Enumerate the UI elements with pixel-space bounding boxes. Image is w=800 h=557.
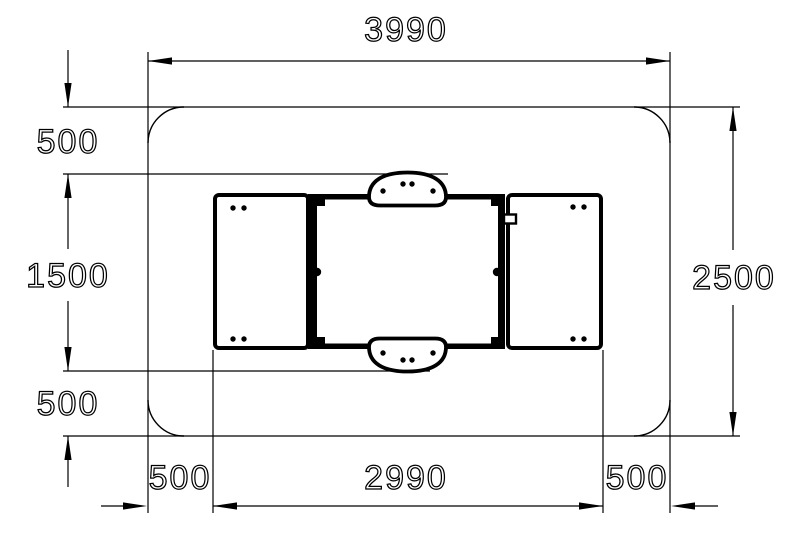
technical-drawing: 3990 2500 500 1500 500 <box>0 0 800 557</box>
dimension-top-clearance: 500 <box>37 50 100 161</box>
extension-lines <box>63 52 740 513</box>
right-panel-latch <box>504 215 516 224</box>
arrowhead-right-icon <box>123 502 147 509</box>
center-frame <box>308 194 505 349</box>
arrowhead-down-icon <box>64 83 71 107</box>
corner-arc-top-right <box>634 107 670 143</box>
equipment-top-view <box>215 173 601 372</box>
frame-corner-block-tl <box>317 199 325 206</box>
arrowhead-left-icon <box>213 502 237 509</box>
frame-right-hinge-knob <box>493 268 501 276</box>
arrowhead-left-icon <box>671 502 695 509</box>
frame-corner-block-bl <box>317 337 325 344</box>
corner-arc-top-left <box>148 107 184 143</box>
frame-left-hinge-knob <box>313 268 321 276</box>
dim-label-item-depth: 1500 <box>26 257 110 295</box>
dim-label-item-width: 2990 <box>364 459 448 497</box>
drawing-canvas: 3990 2500 500 1500 500 <box>0 0 800 557</box>
dim-label-zone-width: 3990 <box>364 11 448 49</box>
arrowhead-right-icon <box>579 502 603 509</box>
dimension-left-clearance: 500 <box>101 459 211 510</box>
left-table-panel <box>215 195 308 348</box>
arrowhead-down-icon <box>64 347 71 371</box>
dimension-zone-width: 3990 <box>148 11 670 65</box>
arrowhead-right-icon <box>646 57 670 64</box>
corner-arc-bottom-left <box>148 400 184 436</box>
dim-label-bottom-clearance: 500 <box>37 385 100 423</box>
dimension-right-clearance: 500 <box>606 459 718 510</box>
corner-arc-bottom-right <box>634 400 670 436</box>
arrowhead-left-icon <box>148 57 172 64</box>
arrowhead-down-icon <box>729 412 736 436</box>
dimension-item-width: 2990 <box>213 459 603 510</box>
dim-label-zone-height: 2500 <box>692 259 776 297</box>
right-table-panel <box>508 195 601 348</box>
frame-corner-block-tr <box>491 199 499 206</box>
dimension-zone-height: 2500 <box>692 107 776 436</box>
dimension-item-depth: 1500 <box>26 174 110 371</box>
frame-corner-block-br <box>491 337 499 344</box>
dim-label-right-clearance: 500 <box>606 459 669 497</box>
arrowhead-up-icon <box>729 107 736 131</box>
dim-label-top-clearance: 500 <box>37 123 100 161</box>
dim-label-left-clearance: 500 <box>149 459 212 497</box>
